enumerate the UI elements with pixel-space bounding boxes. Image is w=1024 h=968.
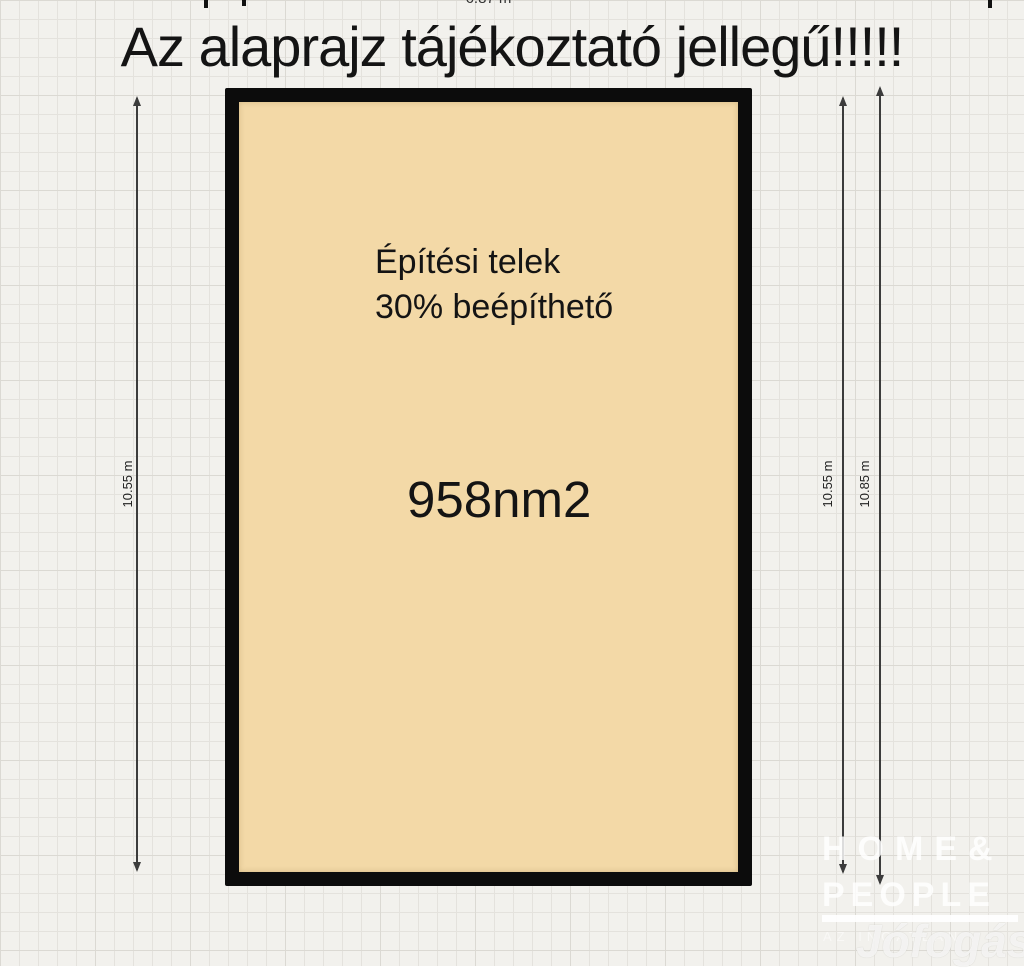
- left-dimension-label: 10.55 m: [120, 454, 136, 514]
- disclaimer-title: Az alaprajz tájékoztató jellegű!!!!!: [0, 16, 1024, 78]
- left-dimension-line: [136, 98, 138, 870]
- home-people-logo: HOME& PEOPLE: [822, 826, 1022, 918]
- arrow-down-icon: [133, 862, 141, 872]
- dimension-tick: [242, 0, 246, 6]
- plot-type-line1: Építési telek: [375, 240, 613, 285]
- plot-sketch: 6.87 m Az alaprajz tájékoztató jellegű!!…: [0, 0, 1024, 966]
- right-inner-dimension-line: [842, 98, 844, 872]
- top-dimension-label: 6.87 m: [225, 0, 752, 7]
- plot-area-label: 958nm2: [407, 470, 591, 529]
- dimension-tick: [988, 0, 992, 8]
- home-people-logo-line1: HOME&: [822, 826, 1022, 872]
- plot-type-label: Építési telek 30% beépíthető: [375, 240, 613, 330]
- jofogas-watermark: Jófogás: [856, 914, 1024, 968]
- plot-type-line2: 30% beépíthető: [375, 285, 613, 330]
- right-outer-dimension-line: [879, 88, 881, 883]
- right-inner-dimension-label: 10.55 m: [820, 454, 836, 514]
- right-outer-dimension-label: 10.85 m: [857, 454, 873, 514]
- home-people-logo-line2: PEOPLE: [822, 872, 1022, 918]
- arrow-up-icon: [839, 96, 847, 106]
- arrow-up-icon: [876, 86, 884, 96]
- plot-outline: Építési telek 30% beépíthető 958nm2: [225, 88, 752, 886]
- arrow-up-icon: [133, 96, 141, 106]
- dimension-tick: [204, 0, 208, 8]
